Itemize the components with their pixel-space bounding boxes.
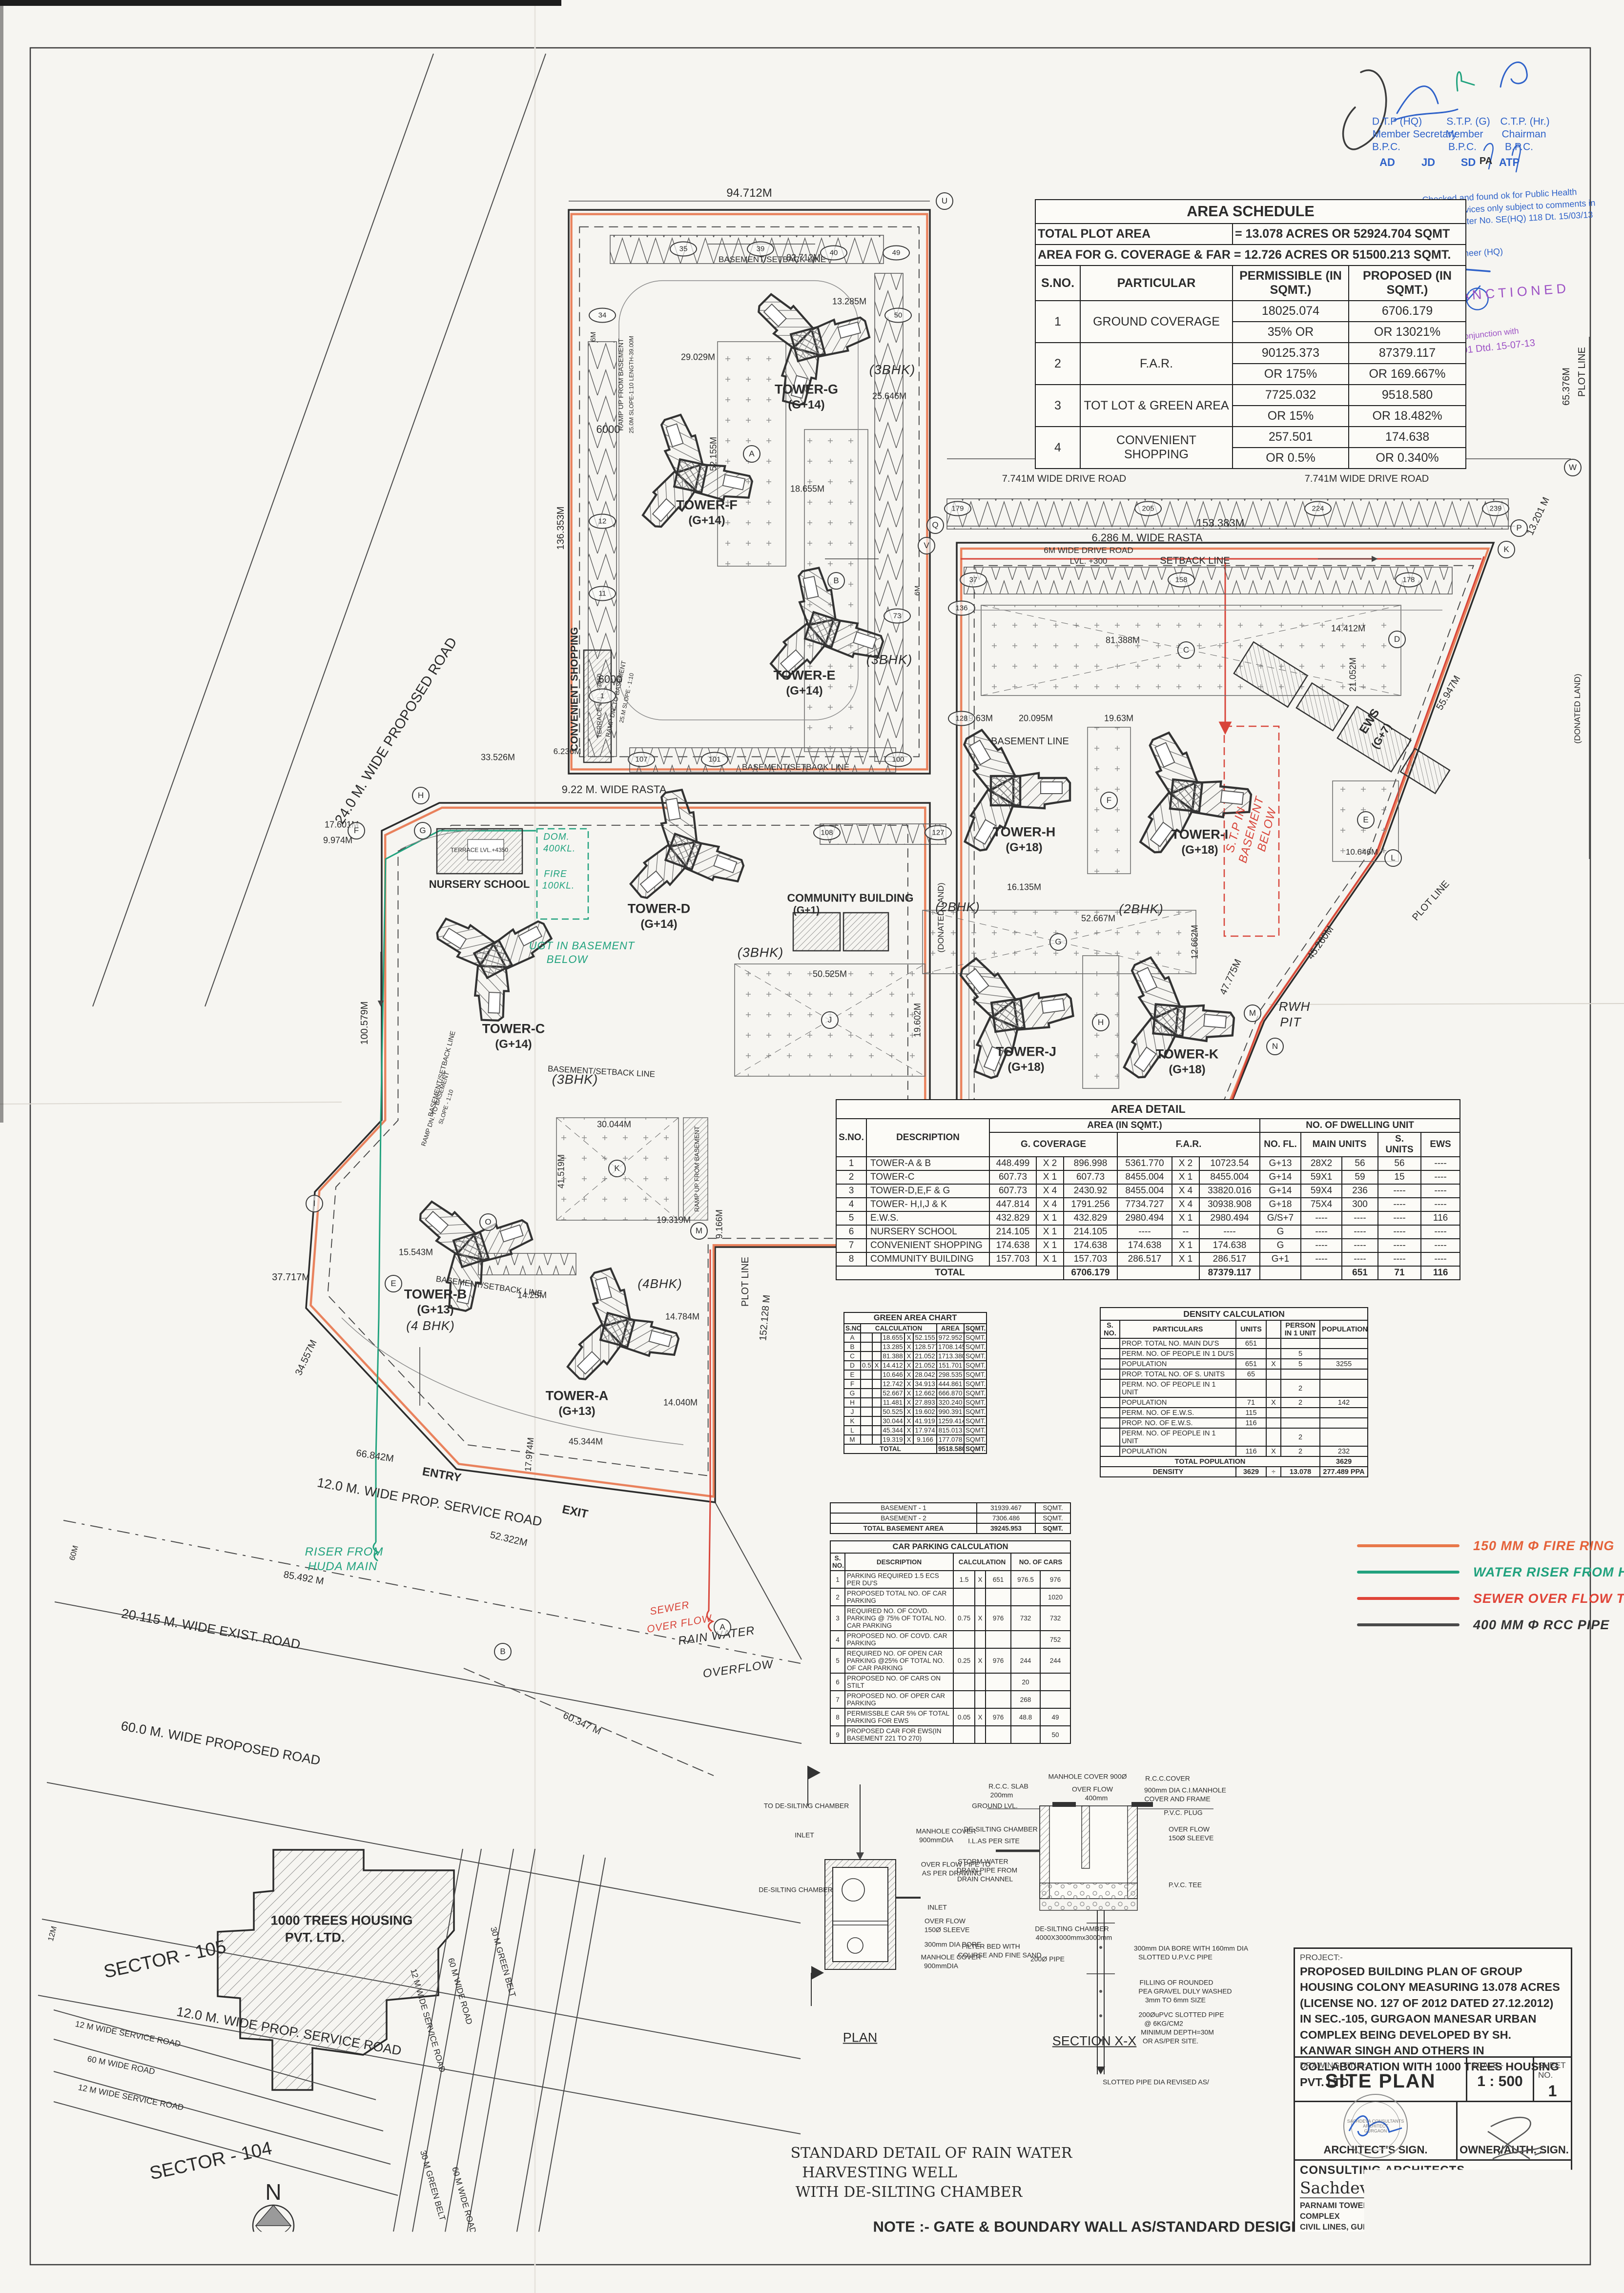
table-cell: 1713.380 [937,1351,964,1361]
table-cell: 2 [830,1588,845,1606]
table-cell: SQMT. [1035,1523,1070,1534]
table-cell: 115 [1236,1408,1266,1418]
table-cell: = 13.078 ACRES OR 52924.704 SQMT [1233,224,1466,245]
table-cell: 52.155 [913,1333,937,1342]
area-schedule-table: AREA SCHEDULETOTAL PLOT AREA= 13.078 ACR… [1035,199,1465,469]
table-cell: X [975,1571,986,1588]
table-cell [1260,1266,1301,1280]
table-cell: 0.05 [953,1708,975,1726]
table-cell: 48.8 [1011,1708,1040,1726]
table-cell: PERSON IN 1 UNIT [1281,1320,1320,1338]
table-cell: NO. OF CARS [1011,1553,1070,1571]
table-cell: 174.638 [1349,427,1466,448]
table-cell: CONVENIENT SHOPPING [866,1239,989,1252]
table-cell: PERM. NO. OF PEOPLE IN 1 UNIT [1120,1428,1236,1446]
table-cell: 8455.004 [1117,1184,1172,1198]
table-cell: ---- [1421,1170,1460,1184]
table-cell: 896.998 [1064,1157,1117,1170]
table-cell [1320,1369,1368,1379]
table-cell [1266,1320,1281,1338]
table-cell: GROUND COVERAGE [1080,301,1233,343]
table-cell: 1.5 [953,1571,975,1588]
table-cell: 59X4 [1301,1184,1342,1198]
table-cell: 2980.494 [1199,1211,1260,1225]
table-cell: 116 [1236,1418,1266,1428]
table-cell [1100,1446,1120,1456]
table-cell: 27.893 [913,1398,937,1407]
table-cell: 174.638 [1064,1239,1117,1252]
table-cell: 13.285 [881,1342,905,1351]
table-cell [986,1691,1011,1708]
table-cell [872,1407,881,1416]
table-cell: SQMT. [964,1379,987,1389]
table-cell: H [844,1398,861,1407]
table-cell: REQUIRED NO. OF OPEN CAR PARKING @25% OF… [845,1648,953,1673]
table-cell: 5 [830,1648,845,1673]
table-cell [1100,1418,1120,1428]
area-detail-head: AREA DETAILS.NO.DESCRIPTIONAREA (IN SQMT… [836,1100,1460,1157]
table-cell: 6706.179 [1349,301,1466,322]
table-cell [872,1370,881,1379]
table-cell: SQMT. [964,1435,987,1444]
table-cell: ---- [1378,1198,1421,1211]
table-cell: PROPOSED CAR FOR EWS(IN BASEMENT 221 TO … [845,1726,953,1743]
table-cell: S.NO. [1035,266,1080,301]
owner-signature [1471,2112,1559,2170]
table-cell: TOTAL [844,1444,937,1454]
table-cell: J [844,1407,861,1416]
table-cell: 21.052 [913,1351,937,1361]
table-cell: EWS [1421,1132,1460,1157]
table-cell: ---- [1301,1211,1342,1225]
table-cell: COMMUNITY BUILDING [866,1252,989,1266]
table-cell: 50 [1040,1726,1070,1743]
table-cell: 5361.770 [1117,1157,1172,1170]
table-cell: 3629 [1320,1456,1368,1467]
table-cell: C [844,1351,861,1361]
table-cell: SQMT. [1035,1513,1070,1523]
tower-h-footprint [958,726,1070,856]
table-cell: 116 [1236,1446,1266,1456]
project-label: PROJECT:- [1300,1953,1566,1963]
table-cell: 4 [836,1198,866,1211]
table-cell [872,1351,881,1361]
key-plan [54,1849,605,2248]
table-cell: X [975,1708,986,1726]
table-cell: ---- [1378,1252,1421,1266]
table-cell: PROP. TOTAL NO. OF S. UNITS [1120,1369,1236,1379]
table-cell [1100,1338,1120,1349]
table-cell: 5 [1281,1349,1320,1359]
table-cell: UNITS [1236,1320,1266,1338]
legend-label: 150 MM Φ FIRE RING [1473,1538,1614,1554]
table-cell [1281,1418,1320,1428]
drawing-title: SITE PLAN [1300,2070,1461,2092]
table-cell: E [844,1370,861,1379]
table-cell: 286.517 [1199,1252,1260,1266]
table-cell: X 1 [1036,1239,1064,1252]
table-cell: CAR PARKING CALCULATION [830,1541,1070,1553]
table-cell: 49 [1040,1708,1070,1726]
table-cell: 177.078 [937,1435,964,1444]
table-cell: 7734.727 [1117,1198,1172,1211]
table-cell [1040,1691,1070,1708]
table-cell [953,1691,975,1708]
car-parking-body: 1PARKING REQUIRED 1.5 ECS PER DU'S1.5X65… [830,1571,1070,1743]
table-cell: X [905,1407,913,1416]
table-cell: X [975,1648,986,1673]
table-cell: ---- [1421,1184,1460,1198]
table-cell: 34.913 [913,1379,937,1389]
table-cell: OR 175% [1233,364,1349,385]
table-cell: 1791.256 [1064,1198,1117,1211]
table-cell [861,1389,872,1398]
table-cell: ---- [1342,1225,1378,1239]
drawing-title-label: DRAWING TITLE:- [1300,2061,1461,2070]
table-cell: M [844,1435,861,1444]
basement-body: BASEMENT - 131939.467SQMT.BASEMENT - 273… [830,1503,1070,1534]
table-cell: G+1 [1260,1252,1301,1266]
table-cell: G+14 [1260,1170,1301,1184]
table-cell: 666.870 [937,1389,964,1398]
table-cell [953,1726,975,1743]
gate-note: NOTE :- GATE & BOUNDARY WALL AS/STANDARD… [873,2218,1302,2234]
table-cell: TOWER-A & B [866,1157,989,1170]
table-cell: POPULATION [1120,1359,1236,1369]
table-cell: AREA (IN SQMT.) [989,1119,1260,1132]
stp-basement-outline [1224,726,1279,936]
table-cell: X 1 [1036,1225,1064,1239]
legend-line-swatch [1357,1544,1460,1547]
table-cell: NURSERY SCHOOL [866,1225,989,1239]
table-cell: OR 15% [1233,406,1349,427]
table-cell: PERM. NO. OF E.W.S. [1120,1408,1236,1418]
table-cell: 71 [1378,1266,1421,1280]
seal-text: ARCHITECT [1363,2124,1388,2129]
table-cell: 1708.145 [937,1342,964,1351]
ugt-outline [537,829,588,919]
table-cell: F.A.R. [1080,343,1233,385]
table-cell: 30938.908 [1199,1198,1260,1211]
table-cell: ---- [1301,1252,1342,1266]
table-cell: X [1266,1397,1281,1408]
table-cell: 3255 [1320,1359,1368,1369]
table-cell: DESCRIPTION [866,1119,989,1157]
table-cell [1100,1369,1120,1379]
table-cell: 1 [1035,301,1080,343]
rwh-detail [808,1766,1213,2074]
table-cell: 1 [830,1571,845,1588]
table-cell [1266,1369,1281,1379]
table-cell [861,1416,872,1426]
table-cell: AREA [937,1324,964,1333]
table-cell: A [844,1333,861,1342]
table-cell: 116 [1421,1266,1460,1280]
table-cell: CONVENIENT SHOPPING [1080,427,1233,469]
table-cell: 9518.580 [937,1444,964,1454]
table-cell [1100,1408,1120,1418]
table-cell: 15 [1378,1170,1421,1184]
tower-d-footprint [620,778,762,930]
area-schedule-head: AREA SCHEDULETOTAL PLOT AREA= 13.078 ACR… [1035,200,1466,301]
green-area-chart-table: GREEN AREA CHARTS.NO.CALCULATIONAREASQMT… [843,1312,986,1454]
table-cell: G/S+7 [1260,1211,1301,1225]
table-cell: ---- [1342,1252,1378,1266]
table-cell: 151.701 [937,1361,964,1370]
table-cell: X [1266,1359,1281,1369]
table-cell: 607.73 [989,1170,1036,1184]
table-cell: 1259.414 [937,1416,964,1426]
table-cell [975,1691,986,1708]
table-cell [861,1398,872,1407]
table-cell: 90125.373 [1233,343,1349,364]
scan-edge-top [0,0,561,6]
table-cell: 432.829 [1064,1211,1117,1225]
scale-label: SCALE:- [1471,2061,1529,2070]
table-cell: 232 [1320,1446,1368,1456]
table-cell: 28X2 [1301,1157,1342,1170]
table-cell: PROPOSED NO. OF OPER CAR PARKING [845,1691,953,1708]
table-cell: 28.042 [913,1370,937,1379]
table-cell: 277.489 PPA [1320,1467,1368,1477]
table-cell: 3 [836,1184,866,1198]
table-cell: 45.344 [881,1426,905,1435]
table-cell: L [844,1426,861,1435]
table-cell: 33820.016 [1199,1184,1260,1198]
community-building-footprint [793,913,840,951]
table-cell: SQMT. [964,1398,987,1407]
table-cell: X [905,1333,913,1342]
project-section: PROJECT:- PROPOSED BUILDING PLAN OF GROU… [1295,1949,1571,2058]
table-cell: PERM. NO. OF PEOPLE IN 1 DU'S [1120,1349,1236,1359]
table-cell: 651 [986,1571,1011,1588]
table-cell: 6 [830,1673,845,1691]
table-cell: X 4 [1172,1184,1199,1198]
area-detail-body: 1TOWER-A & B448.499X 2896.9985361.770X 2… [836,1157,1460,1280]
table-cell: 30.044 [881,1416,905,1426]
table-cell [1100,1397,1120,1408]
table-cell: PARKING REQUIRED 1.5 ECS PER DU'S [845,1571,953,1588]
table-cell: REQUIRED NO. OF COVD. PARKING @ 75% OF T… [845,1606,953,1631]
table-cell: 7725.032 [1233,385,1349,406]
table-cell [861,1351,872,1361]
table-cell: ÷ [1266,1467,1281,1477]
table-cell: G [844,1389,861,1398]
consulting-architects-section: CONSULTING ARCHITECTS Sachdeva Consultan… [1295,2161,1571,2257]
table-cell [872,1379,881,1389]
basement-area-table: BASEMENT - 131939.467SQMT.BASEMENT - 273… [830,1502,1070,1534]
table-cell [1266,1408,1281,1418]
table-cell: 65 [1236,1369,1266,1379]
table-cell: 972.952 [937,1333,964,1342]
table-cell: 752 [1040,1631,1070,1648]
architect-sign-cell: SACHDEVA CONSULTANTS ARCHITECT GURGAON A… [1295,2102,1458,2159]
table-cell: G+13 [1260,1157,1301,1170]
table-cell: 157.703 [989,1252,1036,1266]
table-cell: ---- [1342,1211,1378,1225]
table-cell [953,1588,975,1606]
table-cell [1236,1349,1266,1359]
firm-address-1: PARNAMI TOWER, 3RD FLOOR , S.C.O, 50-51 … [1300,2200,1566,2222]
density-body: PROP. TOTAL NO. MAIN DU'S651PERM. NO. OF… [1100,1338,1368,1477]
table-cell [1301,1266,1342,1280]
table-cell: PERM. NO. OF PEOPLE IN 1 UNIT [1120,1379,1236,1397]
area-detail-table: AREA DETAILS.NO.DESCRIPTIONAREA (IN SQMT… [836,1099,1460,1280]
table-cell: 2 [1281,1379,1320,1397]
table-cell: 236 [1342,1184,1378,1198]
table-cell: K [844,1416,861,1426]
table-cell [986,1588,1011,1606]
table-cell [861,1370,872,1379]
table-cell: 174.638 [1117,1239,1172,1252]
table-cell: 2430.92 [1064,1184,1117,1198]
legend-label: 400 MM Φ RCC PIPE [1473,1617,1609,1633]
table-cell: PERMISSBLE CAR 5% OF TOTAL PARKING FOR E… [845,1708,953,1726]
table-cell: 11.481 [881,1398,905,1407]
table-cell: PROPOSED (IN SQMT.) [1349,266,1466,301]
scan-edge-left [0,0,3,1123]
table-cell: DESCRIPTION [845,1553,953,1571]
table-cell: SQMT. [964,1426,987,1435]
seal-text: SACHDEVA CONSULTANTS [1347,2119,1404,2124]
table-cell: 2980.494 [1117,1211,1172,1225]
table-cell: ---- [1378,1225,1421,1239]
table-cell: CALCULATION [953,1553,1011,1571]
table-cell: DENSITY [1100,1467,1236,1477]
table-cell [1100,1428,1120,1446]
table-cell: X [905,1361,913,1370]
table-cell: G [1260,1225,1301,1239]
car-parking-head: CAR PARKING CALCULATIONS. NO.DESCRIPTION… [830,1541,1070,1571]
firm-phone: TELE:4081801,4081802 [1300,2232,1566,2243]
table-cell: PROPOSED NO. OF COVD. CAR PARKING [845,1631,953,1648]
table-cell: 990.391 [937,1407,964,1416]
tower-b-footprint [409,1172,548,1322]
table-cell [872,1435,881,1444]
table-cell: 268 [1011,1691,1040,1708]
table-cell: 976 [1040,1571,1070,1588]
table-cell: PARTICULAR [1080,266,1233,301]
table-cell: E.W.S. [866,1211,989,1225]
table-cell [1100,1349,1120,1359]
table-cell [1320,1338,1368,1349]
table-cell: 214.105 [989,1225,1036,1239]
table-cell: SQMT. [964,1407,987,1416]
table-cell: 10723.54 [1199,1157,1260,1170]
table-cell: 5 [1281,1359,1320,1369]
table-cell [953,1631,975,1648]
table-cell: ---- [1421,1157,1460,1170]
table-cell: 12.742 [881,1379,905,1389]
table-cell: 50.525 [881,1407,905,1416]
table-cell: 20 [1011,1673,1040,1691]
table-cell: 8 [830,1708,845,1726]
convenient-shopping-footprint [584,650,611,762]
table-cell: POPULATION [1320,1320,1368,1338]
table-cell: BASEMENT - 1 [830,1503,977,1513]
table-cell: 607.73 [989,1184,1036,1198]
table-cell: 116 [1421,1211,1460,1225]
table-cell: G+18 [1260,1198,1301,1211]
table-cell: GREEN AREA CHART [844,1312,987,1324]
table-cell: 59X1 [1301,1170,1342,1184]
table-cell [1281,1408,1320,1418]
table-cell: ---- [1421,1198,1460,1211]
table-cell [1266,1379,1281,1397]
table-cell: 41.919 [913,1416,937,1426]
table-cell: S. NO. [830,1553,845,1571]
table-cell [872,1342,881,1351]
table-cell: SQMT. [964,1324,987,1333]
table-cell: TOWER-D,E,F & G [866,1184,989,1198]
table-cell: 0.25 [953,1648,975,1673]
table-cell [872,1416,881,1426]
table-cell [1266,1418,1281,1428]
table-cell: 2 [1281,1397,1320,1408]
table-cell: X 1 [1172,1170,1199,1184]
table-cell: 59 [1342,1170,1378,1184]
table-cell: SQMT. [964,1342,987,1351]
table-cell: PERMISSIBLE (IN SQMT.) [1233,266,1349,301]
table-cell: SQMT. [964,1444,987,1454]
table-cell: 3 [1035,385,1080,427]
owner-sign-cell: OWNER/AUTH. SIGN. [1458,2102,1571,2159]
table-cell: 4 [830,1631,845,1648]
table-cell [986,1631,1011,1648]
tower-c-footprint [424,876,576,1034]
table-cell: 2 [836,1170,866,1184]
table-cell: 39245.953 [977,1523,1035,1534]
table-cell [1011,1726,1040,1743]
table-cell: ---- [1342,1239,1378,1252]
table-cell: 31939.467 [977,1503,1035,1513]
table-cell: OR 0.5% [1233,448,1349,469]
table-cell: 19.602 [913,1407,937,1416]
table-cell: S.NO. [836,1119,866,1157]
table-cell: ---- [1117,1225,1172,1239]
table-cell: ---- [1421,1225,1460,1239]
table-cell: 6706.179 [1064,1266,1117,1280]
table-cell: X [905,1389,913,1398]
table-cell: 651 [1236,1359,1266,1369]
table-cell [1266,1338,1281,1349]
density-head: DENSITY CALCULATIONS. NO.PARTICULARSUNIT… [1100,1308,1368,1338]
table-cell: 214.105 [1064,1225,1117,1239]
table-cell: X 1 [1172,1211,1199,1225]
table-cell: OR 13021% [1349,322,1466,343]
table-cell: 607.73 [1064,1170,1117,1184]
green-chart-head: GREEN AREA CHARTS.NO.CALCULATIONAREASQMT… [844,1312,987,1333]
table-cell: F [844,1379,861,1389]
table-cell: F.A.R. [1117,1132,1260,1157]
table-cell: TOTAL POPULATION [1100,1456,1320,1467]
table-cell: 18025.074 [1233,301,1349,322]
table-cell [986,1673,1011,1691]
table-cell [861,1407,872,1416]
table-cell: X [905,1435,913,1444]
table-cell: X 1 [1172,1252,1199,1266]
sheet-label: SHEET NO. [1538,2061,1567,2080]
table-cell: AREA FOR G. COVERAGE & FAR = 12.726 ACRE… [1035,245,1466,266]
legend-line-swatch [1357,1597,1460,1600]
table-cell: TOWER- H,I,J & K [866,1198,989,1211]
green-chart-body: A18.655X52.155972.952SQMT.B13.285X128.57… [844,1333,987,1454]
table-cell: 10.646 [881,1370,905,1379]
table-cell [975,1631,986,1648]
table-cell [872,1389,881,1398]
table-cell [1281,1338,1320,1349]
table-cell [861,1333,872,1342]
